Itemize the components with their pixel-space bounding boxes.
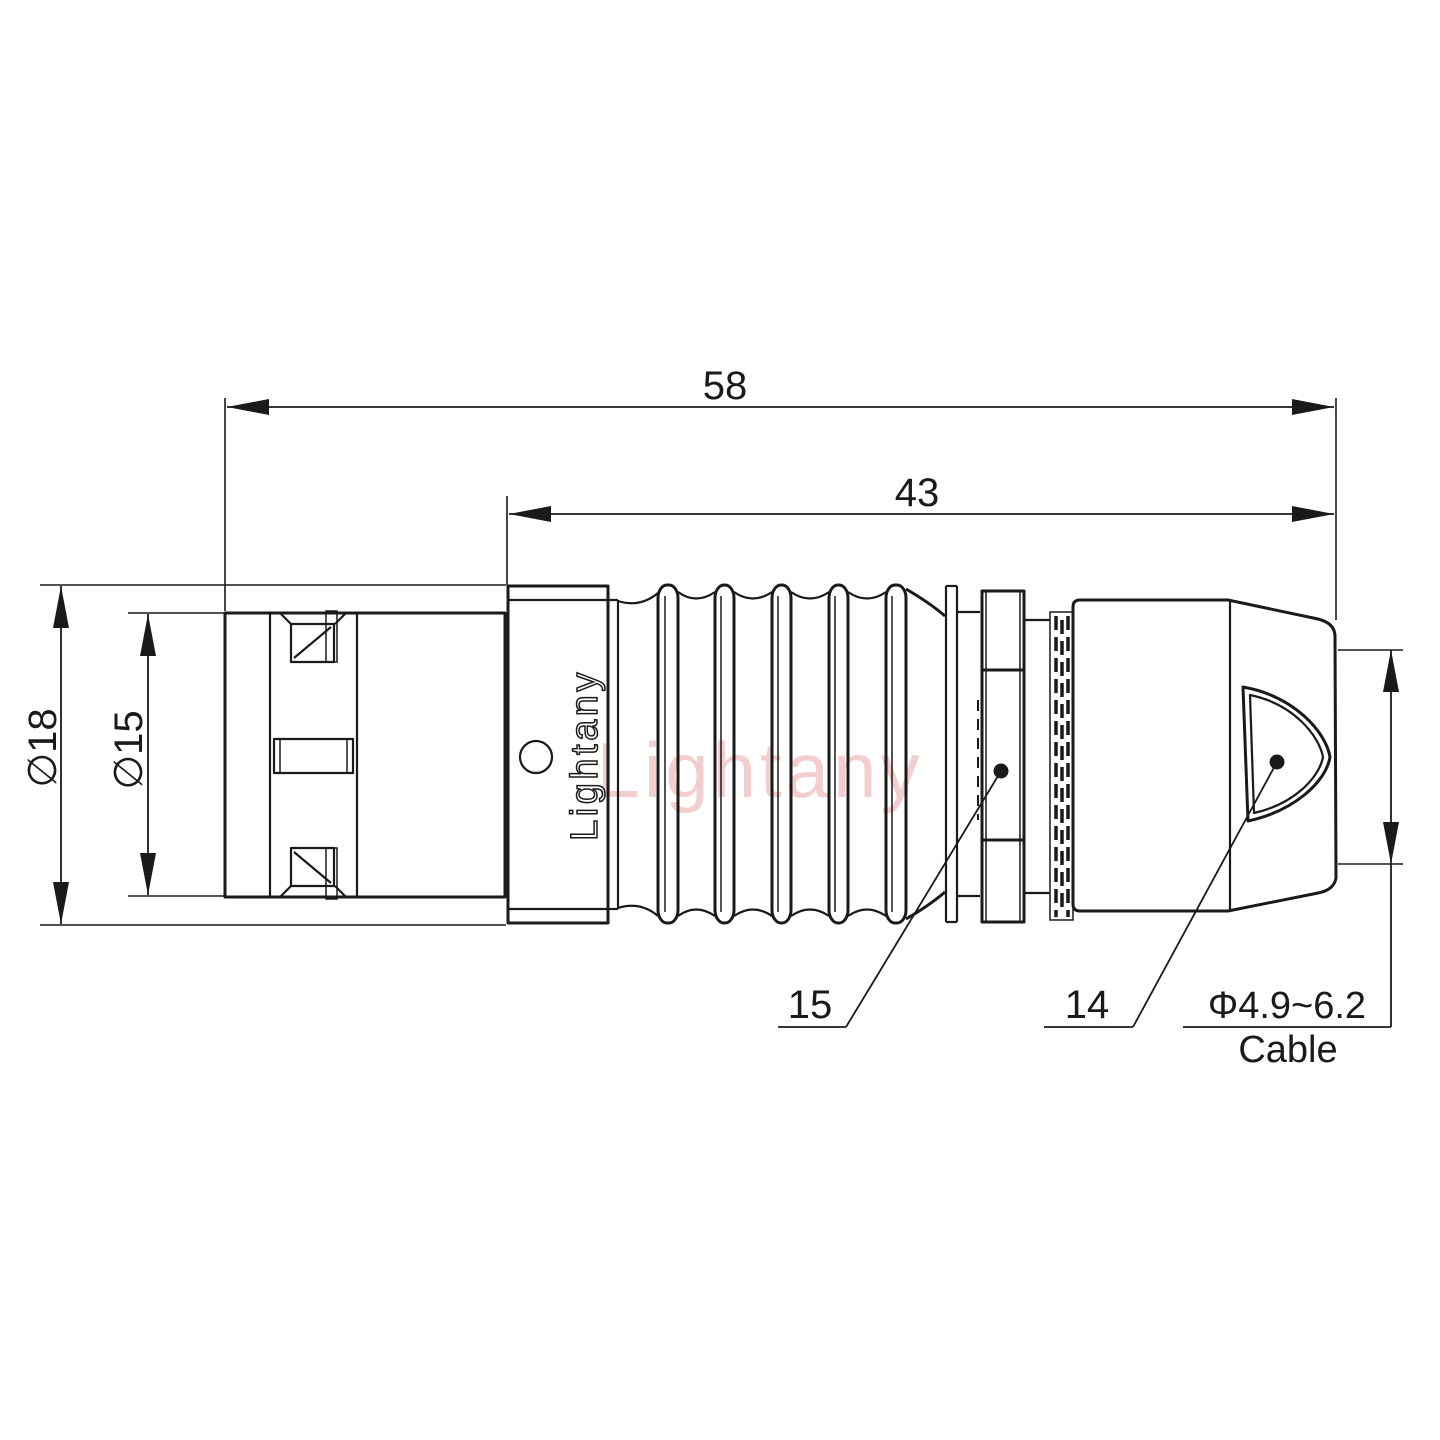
arrowhead-bottom xyxy=(1383,822,1399,864)
part-label-14: 14 xyxy=(1065,983,1110,1027)
cable-label: Cable xyxy=(1238,1029,1337,1071)
overall-length-dimension: 58 xyxy=(225,364,1336,620)
alignment-key-bottom xyxy=(280,848,346,899)
latch-slot xyxy=(274,739,353,773)
overall-length-value: 58 xyxy=(703,364,748,408)
arrowhead-left xyxy=(509,506,551,522)
front-diameter-dimension: ∅15 xyxy=(107,613,226,896)
body-length-value: 43 xyxy=(895,471,940,515)
coupling-ring: Lightany xyxy=(508,586,618,923)
knurled-ring xyxy=(1050,612,1073,920)
arrowhead-right xyxy=(1292,506,1334,522)
body-length-dimension: 43 xyxy=(507,471,1334,585)
arrowhead-top xyxy=(140,614,156,656)
cable-boot xyxy=(1073,600,1336,911)
vent-hole xyxy=(520,741,552,773)
arrowhead-bottom xyxy=(140,853,156,895)
arrowhead-left xyxy=(227,399,269,415)
outer-diameter-value: ∅18 xyxy=(21,708,65,787)
connector-drawing: Lightany xyxy=(0,0,1440,1440)
cable-range-value: Φ4.9~6.2 xyxy=(1208,985,1366,1027)
front-diameter-value: ∅15 xyxy=(107,710,151,789)
coupling-nut xyxy=(982,591,1050,922)
front-shell xyxy=(225,611,505,899)
arrowhead-bottom xyxy=(53,882,69,924)
part-label-15: 15 xyxy=(788,983,833,1027)
arrowhead-right xyxy=(1292,399,1334,415)
boot-outline xyxy=(1073,600,1336,911)
alignment-key-top xyxy=(280,611,346,662)
nut-body xyxy=(982,591,1024,922)
outer-diameter-dimension: ∅18 xyxy=(21,585,506,925)
arrowhead-top xyxy=(53,586,69,628)
bellows-taper-top xyxy=(906,589,945,616)
logo-text: Lightany xyxy=(564,669,606,841)
rear-flange xyxy=(946,586,957,922)
front-shell-body xyxy=(225,613,505,897)
boot-cutout-inner xyxy=(1250,695,1323,813)
watermark-text: Lightany xyxy=(597,726,924,814)
arrowhead-top xyxy=(1383,650,1399,692)
technical-drawing-page: Lightany xyxy=(0,0,1440,1440)
